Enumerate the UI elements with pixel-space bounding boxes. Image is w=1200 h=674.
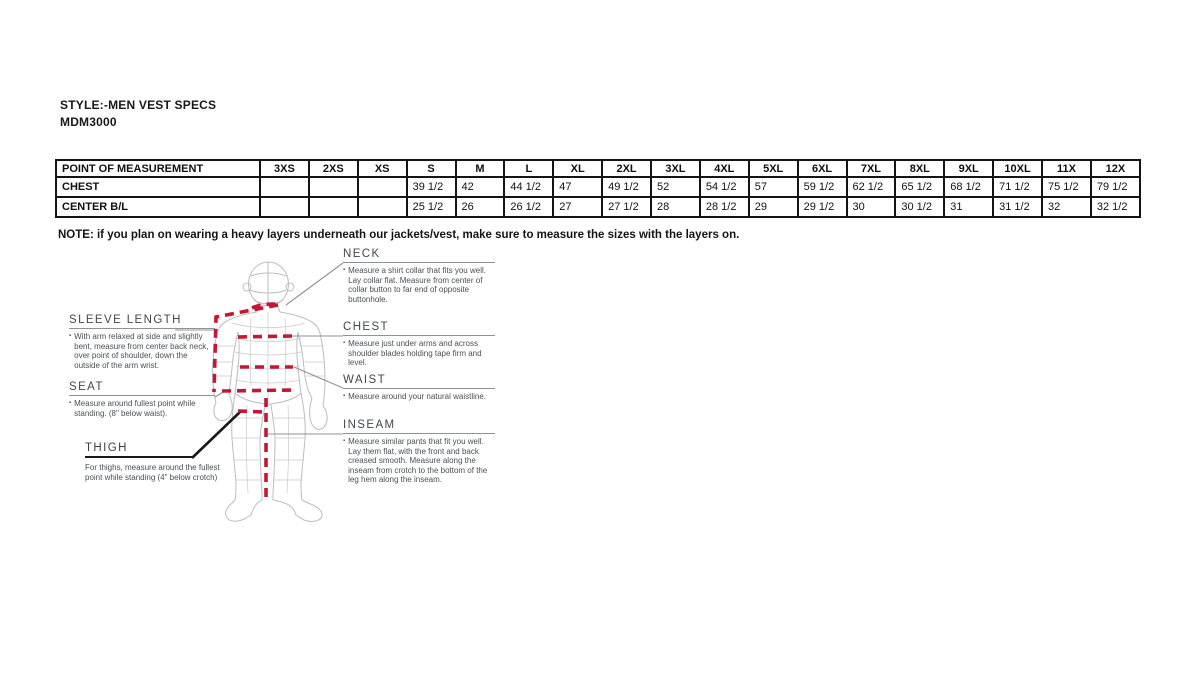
title-block: STYLE:-MEN VEST SPECS MDM3000 xyxy=(60,97,216,131)
size-cell: 49 1/2 xyxy=(602,177,651,197)
inseam-block: INSEAM ▪ Measure similar pants that fit … xyxy=(343,419,495,485)
style-number: MDM3000 xyxy=(60,114,216,131)
size-cell xyxy=(358,197,407,217)
column-header: 8XL xyxy=(895,160,944,177)
size-cell xyxy=(260,177,309,197)
column-header: 3XL xyxy=(651,160,700,177)
size-cell: 62 1/2 xyxy=(847,177,896,197)
column-header: 2XL xyxy=(602,160,651,177)
seat-desc: Measure around fullest point while stand… xyxy=(74,399,215,418)
size-cell: 29 1/2 xyxy=(798,197,847,217)
waist-desc: Measure around your natural waistline. xyxy=(348,392,486,402)
bullet-icon: ▪ xyxy=(343,266,345,304)
size-spec-table: POINT OF MEASUREMENT3XS2XSXSSMLXL2XL3XL4… xyxy=(55,159,1141,218)
size-cell: 39 1/2 xyxy=(407,177,456,197)
size-cell: 75 1/2 xyxy=(1042,177,1091,197)
size-cell: 42 xyxy=(456,177,505,197)
bullet-icon: ▪ xyxy=(69,332,71,370)
column-header: 7XL xyxy=(847,160,896,177)
seat-block: SEAT ▪ Measure around fullest point whil… xyxy=(69,381,215,418)
column-header: 3XS xyxy=(260,160,309,177)
size-cell xyxy=(309,177,358,197)
size-cell: 32 1/2 xyxy=(1091,197,1140,217)
table-row: CENTER B/L25 1/22626 1/22727 1/22828 1/2… xyxy=(56,197,1140,217)
chest-desc: Measure just under arms and across shoul… xyxy=(348,339,495,368)
size-cell: 27 xyxy=(553,197,602,217)
size-cell: 57 xyxy=(749,177,798,197)
header-row: POINT OF MEASUREMENT3XS2XSXSSMLXL2XL3XL4… xyxy=(56,160,1140,177)
bullet-icon: ▪ xyxy=(69,399,71,418)
size-cell: 26 1/2 xyxy=(504,197,553,217)
sleeve-length-desc: With arm relaxed at side and slightly be… xyxy=(74,332,215,370)
column-header: 4XL xyxy=(700,160,749,177)
size-cell: 32 xyxy=(1042,197,1091,217)
size-cell: 47 xyxy=(553,177,602,197)
waist-block: WAIST ▪ Measure around your natural wais… xyxy=(343,374,495,402)
page-title: STYLE:-MEN VEST SPECS xyxy=(60,97,216,114)
column-header: 6XL xyxy=(798,160,847,177)
sleeve-measure-line xyxy=(214,305,278,392)
measurement-diagram: SLEEVE LENGTH ▪ With arm relaxed at side… xyxy=(55,248,497,533)
column-header: 12X xyxy=(1091,160,1140,177)
row-label: CHEST xyxy=(56,177,260,197)
column-header: 9XL xyxy=(944,160,993,177)
measurement-lines xyxy=(214,304,294,502)
column-header: L xyxy=(504,160,553,177)
chest-title: CHEST xyxy=(343,321,495,336)
inseam-title: INSEAM xyxy=(343,419,495,434)
column-header: 11X xyxy=(1042,160,1091,177)
column-header: XS xyxy=(358,160,407,177)
size-cell: 68 1/2 xyxy=(944,177,993,197)
spec-sheet-page: STYLE:-MEN VEST SPECS MDM3000 POINT OF M… xyxy=(0,0,1200,674)
size-cell: 30 xyxy=(847,197,896,217)
note-text: NOTE: if you plan on wearing a heavy lay… xyxy=(58,229,739,241)
column-header: S xyxy=(407,160,456,177)
bullet-icon: ▪ xyxy=(343,392,345,402)
column-header: 2XS xyxy=(309,160,358,177)
size-cell: 31 1/2 xyxy=(993,197,1042,217)
size-cell: 28 xyxy=(651,197,700,217)
size-cell: 30 1/2 xyxy=(895,197,944,217)
row-label: CENTER B/L xyxy=(56,197,260,217)
waist-title: WAIST xyxy=(343,374,495,389)
sleeve-length-block: SLEEVE LENGTH ▪ With arm relaxed at side… xyxy=(69,314,215,370)
body-contours xyxy=(213,312,325,493)
size-cell: 54 1/2 xyxy=(700,177,749,197)
bullet-icon: ▪ xyxy=(343,437,345,485)
size-cell xyxy=(309,197,358,217)
thigh-title: THIGH xyxy=(85,442,192,458)
column-header: M xyxy=(456,160,505,177)
thigh-desc: For thighs, measure around the fullest p… xyxy=(85,463,221,482)
column-header: XL xyxy=(553,160,602,177)
size-cell: 59 1/2 xyxy=(798,177,847,197)
thigh-block: THIGH For thighs, measure around the ful… xyxy=(85,442,221,482)
size-cell xyxy=(260,197,309,217)
size-cell: 27 1/2 xyxy=(602,197,651,217)
size-cell: 26 xyxy=(456,197,505,217)
neck-block: NECK ▪ Measure a shirt collar that fits … xyxy=(343,248,495,304)
thigh-measure-line xyxy=(238,411,264,412)
sleeve-length-title: SLEEVE LENGTH xyxy=(69,314,215,329)
size-cell: 29 xyxy=(749,197,798,217)
size-cell: 44 1/2 xyxy=(504,177,553,197)
column-header: POINT OF MEASUREMENT xyxy=(56,160,260,177)
size-cell: 71 1/2 xyxy=(993,177,1042,197)
size-cell xyxy=(358,177,407,197)
column-header: 5XL xyxy=(749,160,798,177)
seat-title: SEAT xyxy=(69,381,215,396)
size-cell: 65 1/2 xyxy=(895,177,944,197)
size-cell: 31 xyxy=(944,197,993,217)
size-cell: 52 xyxy=(651,177,700,197)
size-cell: 79 1/2 xyxy=(1091,177,1140,197)
table-row: CHEST39 1/24244 1/24749 1/25254 1/25759 … xyxy=(56,177,1140,197)
inseam-desc: Measure similar pants that fit you well.… xyxy=(348,437,495,485)
neck-title: NECK xyxy=(343,248,495,263)
bullet-icon: ▪ xyxy=(343,339,345,368)
seat-measure-line xyxy=(222,390,294,391)
column-header: 10XL xyxy=(993,160,1042,177)
neck-desc: Measure a shirt collar that fits you wel… xyxy=(348,266,495,304)
chest-measure-line xyxy=(238,336,292,337)
chest-block: CHEST ▪ Measure just under arms and acro… xyxy=(343,321,495,368)
size-cell: 25 1/2 xyxy=(407,197,456,217)
size-cell: 28 1/2 xyxy=(700,197,749,217)
